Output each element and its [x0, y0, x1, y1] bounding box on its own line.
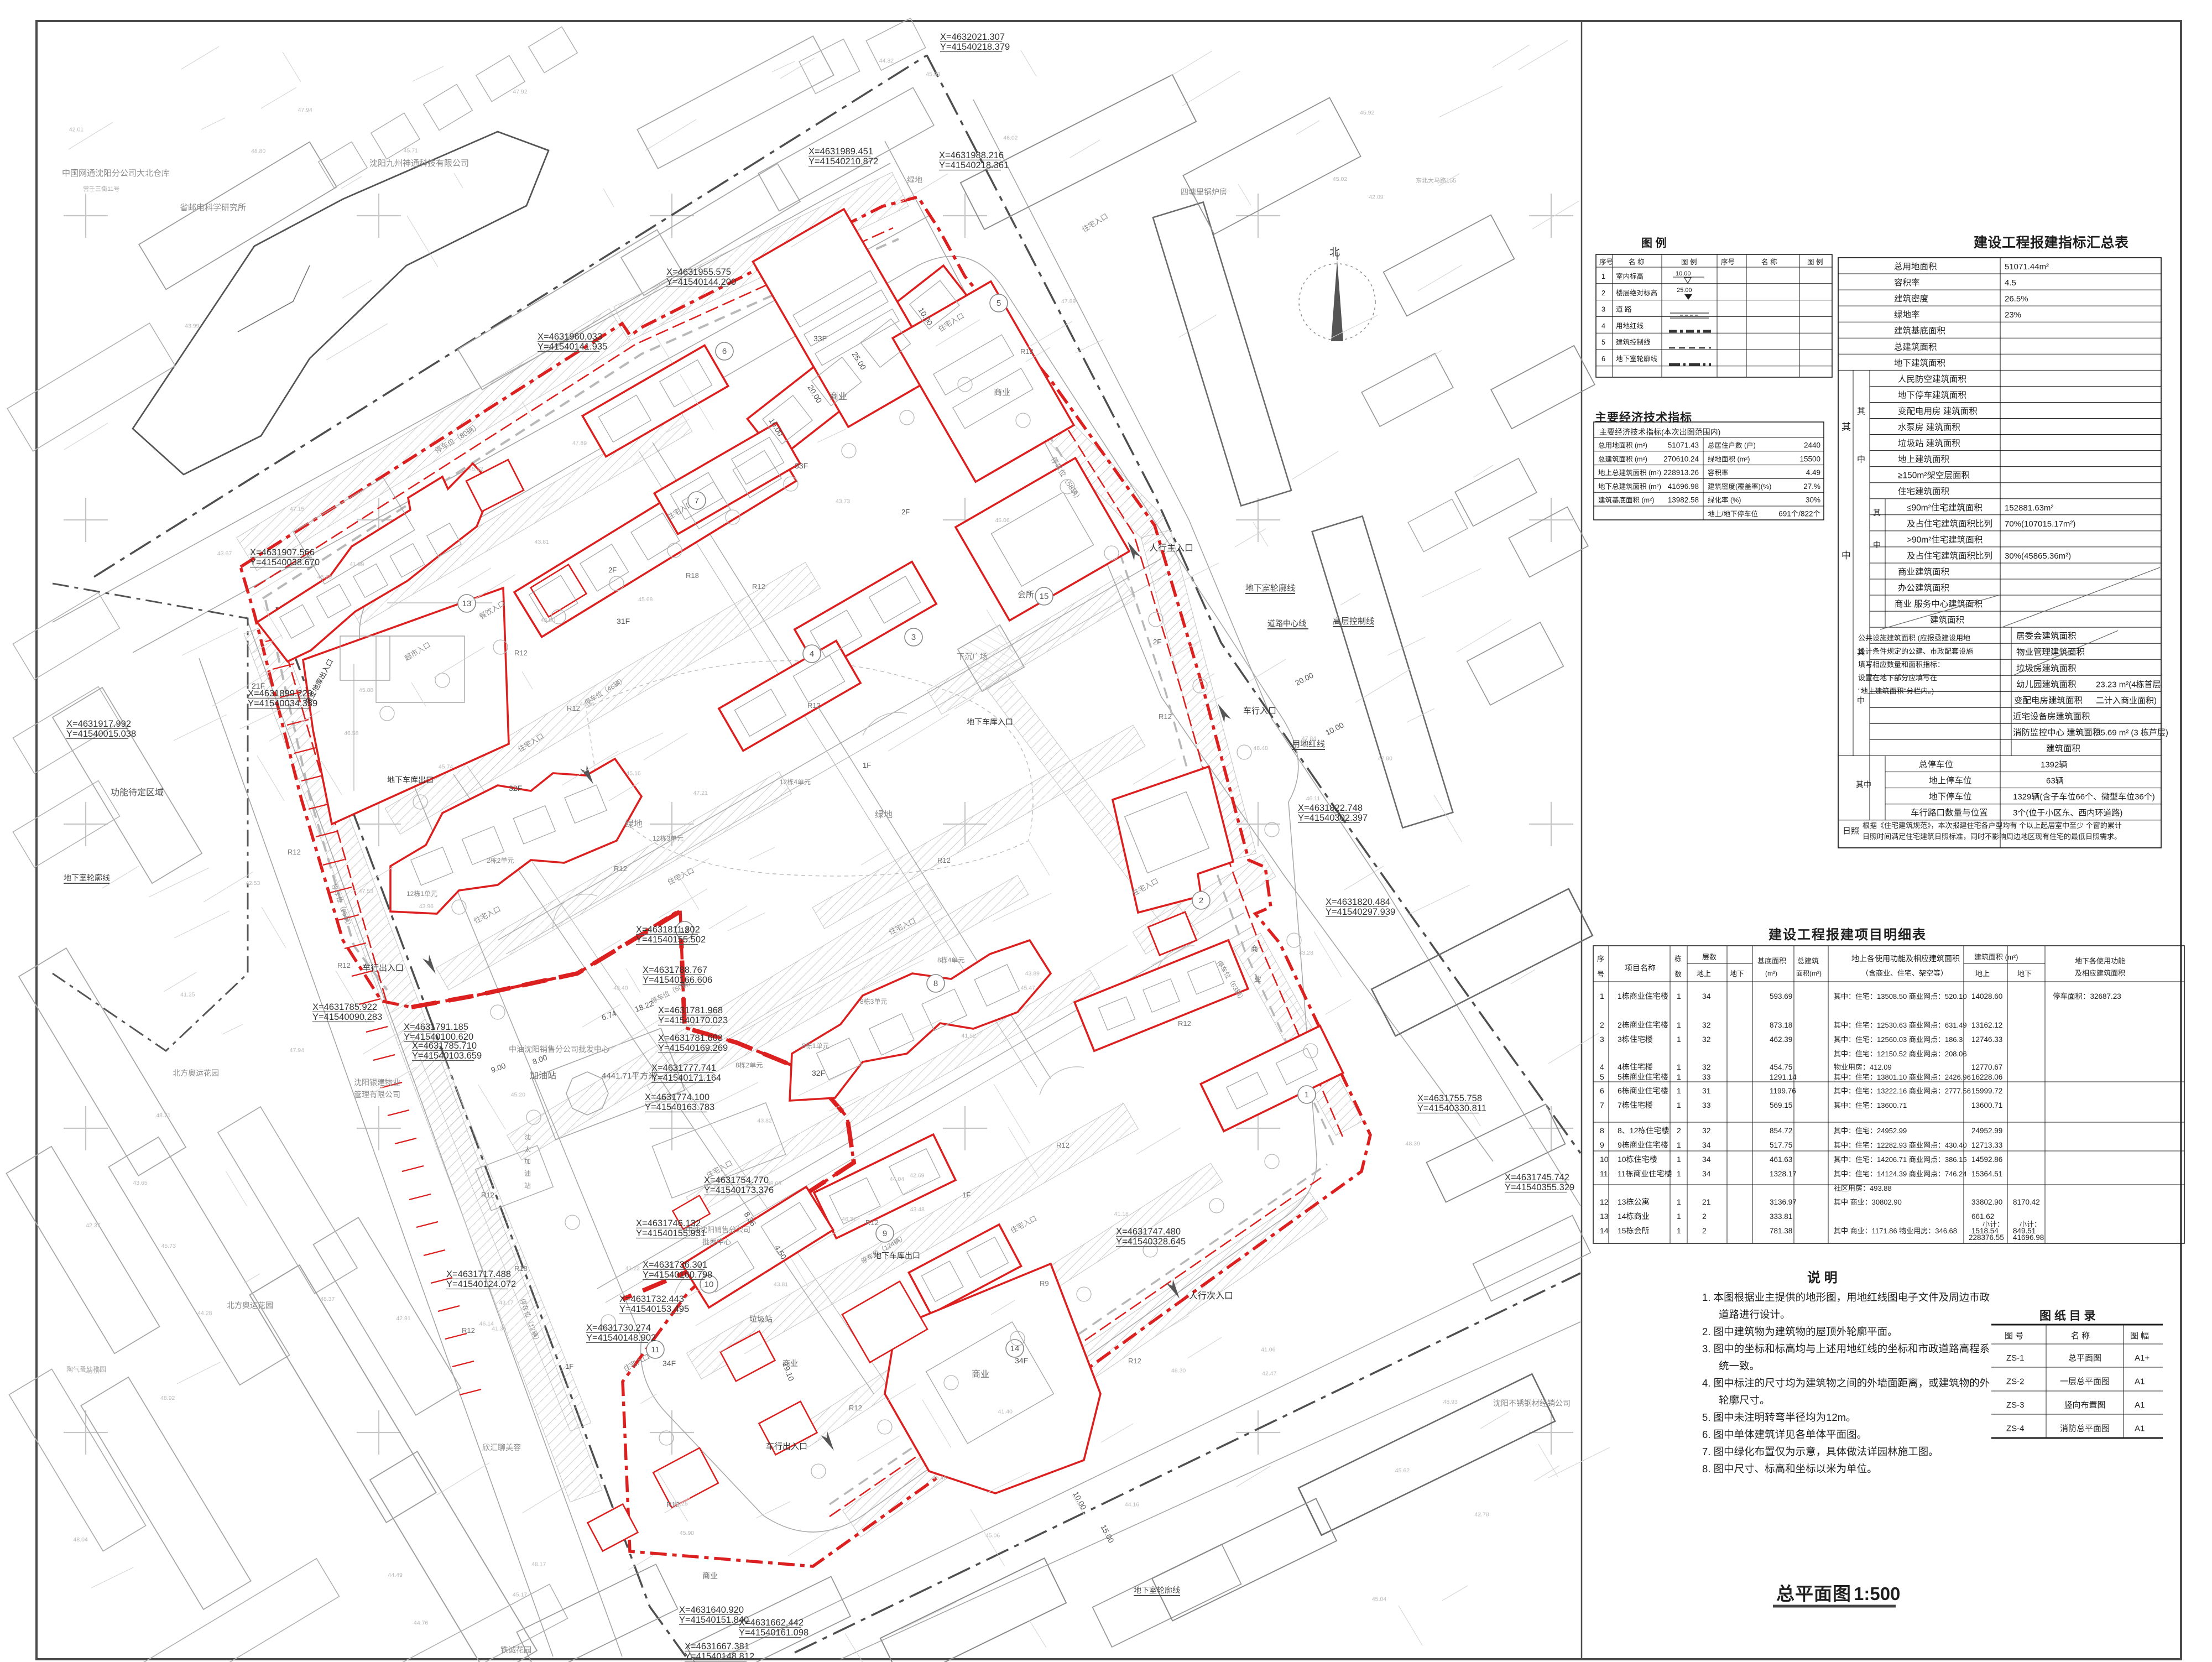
svg-text:48.17: 48.17 — [531, 1561, 546, 1567]
svg-text:14592.86: 14592.86 — [1971, 1155, 2002, 1164]
svg-text:70%(107015.17m²): 70%(107015.17m²) — [2005, 519, 2075, 529]
svg-text:Y=41540148.902: Y=41540148.902 — [586, 1333, 656, 1343]
svg-text:地下车库出口: 地下车库出口 — [387, 775, 434, 784]
svg-text:8栋2单元: 8栋2单元 — [735, 1061, 763, 1069]
svg-text:≤90m²住宅建筑面积: ≤90m²住宅建筑面积 — [1907, 503, 1983, 513]
svg-text:X=4631640.920: X=4631640.920 — [679, 1605, 744, 1615]
svg-text:总建筑: 总建筑 — [1797, 957, 1819, 965]
svg-text:总平面图: 总平面图 — [1776, 1583, 1851, 1604]
svg-text:Y=41540166.606: Y=41540166.606 — [643, 975, 712, 985]
svg-text:Y=41540302.397: Y=41540302.397 — [1298, 813, 1368, 823]
svg-text:商业建筑面积: 商业建筑面积 — [1898, 567, 1949, 577]
svg-text:X=4631747.480: X=4631747.480 — [1116, 1227, 1181, 1237]
svg-text:10栋住宅楼: 10栋住宅楼 — [1618, 1155, 1657, 1164]
svg-text:商业: 商业 — [702, 1571, 718, 1580]
svg-text:图 例: 图 例 — [1641, 236, 1667, 249]
svg-text:Y=41540210.872: Y=41540210.872 — [808, 157, 878, 166]
svg-text:项目名称: 项目名称 — [1625, 963, 1656, 972]
svg-text:X=4631745.742: X=4631745.742 — [1505, 1173, 1569, 1182]
svg-text:批发中心: 批发中心 — [702, 1238, 731, 1246]
svg-text:45.68: 45.68 — [638, 596, 653, 603]
svg-text:2F: 2F — [901, 508, 910, 516]
svg-text:Y=41540171.164: Y=41540171.164 — [651, 1073, 721, 1083]
svg-text:站: 站 — [524, 1182, 531, 1190]
svg-text:数: 数 — [1674, 970, 1682, 978]
svg-text:593.69: 593.69 — [1770, 992, 1792, 1001]
svg-text:1栋商业住宅楼: 1栋商业住宅楼 — [1618, 992, 1668, 1001]
svg-text:45.20: 45.20 — [511, 1092, 525, 1098]
svg-text:26.5%: 26.5% — [2005, 294, 2028, 304]
svg-text:23.23 m²(4栋首层: 23.23 m²(4栋首层 — [2096, 679, 2161, 689]
svg-text:33F: 33F — [813, 334, 827, 343]
svg-text:其中：住宅：13508.50 商业网点：520.10: 其中：住宅：13508.50 商业网点：520.10 — [1834, 992, 1967, 1001]
svg-text:地下室轮廓线: 地下室轮廓线 — [1134, 1586, 1180, 1595]
svg-text:图 纸 目 录: 图 纸 目 录 — [2039, 1309, 2096, 1322]
svg-text:41.36: 41.36 — [492, 1325, 506, 1332]
svg-text:21: 21 — [1702, 1197, 1711, 1206]
svg-text:X=4631781.603: X=4631781.603 — [658, 1033, 723, 1043]
svg-text:加: 加 — [524, 1158, 531, 1165]
svg-text:2. 图中建筑物为建筑物的屋顶外轮廓平面。: 2. 图中建筑物为建筑物的屋顶外轮廓平面。 — [1702, 1326, 1898, 1337]
svg-text:X=4631899.229: X=4631899.229 — [248, 689, 312, 699]
svg-text:41.52: 41.52 — [962, 1033, 976, 1039]
svg-text:3个(位于小区东、西内环道路): 3个(位于小区东、西内环道路) — [2013, 809, 2122, 818]
svg-text:其中：住宅：12282.93 商业网点：430.40: 其中：住宅：12282.93 商业网点：430.40 — [1834, 1141, 1967, 1149]
svg-text:4: 4 — [810, 649, 814, 659]
svg-text:根据《住宅建筑规范》，本次报建住宅各户型均有 个以上起居室中: 根据《住宅建筑规范》，本次报建住宅各户型均有 个以上起居室中至少 个窗的累计 — [1863, 821, 2122, 830]
svg-text:商: 商 — [1251, 945, 1258, 953]
svg-text:绿地: 绿地 — [875, 810, 893, 820]
svg-text:34F: 34F — [662, 1359, 676, 1368]
svg-text:1328.17: 1328.17 — [1770, 1170, 1797, 1178]
svg-text:45.93: 45.93 — [926, 71, 940, 78]
svg-text:41696.98: 41696.98 — [2013, 1233, 2044, 1242]
svg-text:铁诚花园: 铁诚花园 — [500, 1645, 531, 1654]
svg-text:Y=41540330.811: Y=41540330.811 — [1417, 1103, 1486, 1113]
svg-text:48.48: 48.48 — [1253, 745, 1267, 752]
svg-text:其中：住宅：14124.39 商业网点：746.24: 其中：住宅：14124.39 商业网点：746.24 — [1834, 1170, 1967, 1178]
svg-text:地下各使用功能: 地下各使用功能 — [2075, 957, 2125, 965]
svg-text:3栋住宅楼: 3栋住宅楼 — [1618, 1035, 1653, 1044]
svg-text:X=4631754.770: X=4631754.770 — [704, 1175, 769, 1185]
svg-text:Y=41540015.038: Y=41540015.038 — [66, 729, 136, 739]
svg-text:12713.33: 12713.33 — [1971, 1141, 2002, 1149]
svg-text:北方奥运花园: 北方奥运花园 — [227, 1301, 273, 1310]
svg-text:42.69: 42.69 — [910, 1173, 924, 1179]
svg-text:沈阳不锈钢材经销公司: 沈阳不锈钢材经销公司 — [1493, 1399, 1571, 1408]
svg-text:名 称: 名 称 — [2071, 1331, 2090, 1341]
svg-text:物业管理建筑面积: 物业管理建筑面积 — [2016, 647, 2085, 657]
svg-text:1F: 1F — [565, 1362, 573, 1371]
svg-text:其中: 其中 — [1856, 780, 1871, 789]
svg-text:13: 13 — [462, 599, 472, 608]
svg-text:45.02: 45.02 — [1333, 176, 1347, 183]
svg-text:41696.98: 41696.98 — [1668, 482, 1699, 491]
svg-text:42.01: 42.01 — [69, 126, 84, 133]
svg-text:1: 1 — [1677, 1072, 1681, 1081]
svg-text:道路中心线: 道路中心线 — [1267, 619, 1306, 628]
svg-text:R12: R12 — [1020, 347, 1034, 356]
svg-text:绿地: 绿地 — [907, 175, 922, 184]
svg-text:X=4632021.307: X=4632021.307 — [940, 32, 1005, 42]
svg-text:45.16: 45.16 — [626, 770, 640, 777]
svg-text:小计：: 小计： — [1983, 1220, 2004, 1228]
svg-text:北方奥运花园: 北方奥运花园 — [173, 1069, 219, 1077]
svg-text:34: 34 — [1702, 1169, 1711, 1178]
svg-text:地下车库入口: 地下车库入口 — [967, 717, 1013, 726]
svg-text:44.28: 44.28 — [197, 1310, 212, 1317]
svg-text:X=4631746.132: X=4631746.132 — [636, 1218, 701, 1228]
svg-text:48.80: 48.80 — [251, 148, 265, 154]
svg-text:30%(45865.36m²): 30%(45865.36m²) — [2005, 551, 2071, 561]
svg-text:其中：住宅：12560.03 商业网点：186.3: 其中：住宅：12560.03 商业网点：186.3 — [1834, 1035, 1963, 1044]
svg-text:873.18: 873.18 — [1770, 1021, 1792, 1029]
svg-text:其: 其 — [1873, 508, 1881, 517]
svg-text:地下建筑面积: 地下建筑面积 — [1894, 358, 1945, 368]
svg-text:地下停车建筑面积: 地下停车建筑面积 — [1898, 390, 1966, 400]
svg-text:建筑基底面积: 建筑基底面积 — [1894, 326, 1945, 336]
svg-text:7. 图中绿化布置仅为示意，具体做法详园林施工图。: 7. 图中绿化布置仅为示意，具体做法详园林施工图。 — [1702, 1446, 1939, 1457]
svg-text:1F: 1F — [863, 761, 871, 769]
svg-text:R18: R18 — [686, 571, 699, 580]
svg-text:33802.90: 33802.90 — [1971, 1198, 2002, 1206]
svg-text:35.69 m² (3 栋芦层): 35.69 m² (3 栋芦层) — [2096, 727, 2168, 737]
svg-text:517.75: 517.75 — [1770, 1141, 1792, 1149]
svg-text:1: 1 — [1677, 1101, 1681, 1109]
svg-text:地上: 地上 — [1697, 970, 1711, 978]
svg-text:12746.33: 12746.33 — [1971, 1035, 2002, 1044]
svg-text:总停车位: 总停车位 — [1919, 760, 1953, 770]
svg-text:45.74: 45.74 — [439, 764, 453, 770]
svg-text:总建筑面积 (m²): 总建筑面积 (m²) — [1598, 455, 1647, 463]
svg-text:44.32: 44.32 — [879, 58, 894, 64]
svg-text:车行出入口: 车行出入口 — [766, 1442, 807, 1451]
svg-text:Y=41540218.361: Y=41540218.361 — [939, 160, 1009, 170]
svg-text:10: 10 — [1600, 1155, 1609, 1164]
svg-text:454.75: 454.75 — [1770, 1063, 1792, 1071]
svg-text:地下总建筑面积 (m²): 地下总建筑面积 (m²) — [1598, 482, 1661, 491]
svg-text:1:500: 1:500 — [1854, 1583, 1900, 1604]
svg-text:Y=41540160.798: Y=41540160.798 — [643, 1270, 712, 1280]
svg-text:47.94: 47.94 — [290, 1047, 304, 1054]
svg-text:R12: R12 — [1056, 1141, 1070, 1149]
svg-text:30%: 30% — [1806, 496, 1820, 504]
svg-text:1: 1 — [1677, 1062, 1681, 1071]
svg-text:Y=41540103.659: Y=41540103.659 — [412, 1051, 482, 1061]
svg-text:公共设施建筑面积 (应报亟建设用地: 公共设施建筑面积 (应报亟建设用地 — [1858, 634, 1970, 642]
svg-text:其中：住宅：14206.71 商业网点：386.15: 其中：住宅：14206.71 商业网点：386.15 — [1834, 1155, 1967, 1164]
svg-text:(m²): (m²) — [1765, 970, 1777, 977]
svg-text:用地红线: 用地红线 — [1616, 321, 1644, 330]
svg-text:13600.71: 13600.71 — [1971, 1101, 2002, 1109]
svg-text:569.15: 569.15 — [1770, 1101, 1792, 1109]
svg-text:47.53: 47.53 — [359, 888, 373, 894]
svg-text:43.65: 43.65 — [133, 1180, 147, 1186]
svg-text:32: 32 — [1702, 1126, 1711, 1135]
svg-text:42.04: 42.04 — [1261, 587, 1276, 594]
svg-text:12: 12 — [1600, 1197, 1609, 1206]
svg-text:水泵房 建筑面积: 水泵房 建筑面积 — [1898, 423, 1960, 433]
svg-text:地上/地下停车位: 地上/地下停车位 — [1708, 510, 1758, 518]
svg-text:ZS-4: ZS-4 — [2006, 1424, 2025, 1434]
svg-text:43.40: 43.40 — [613, 984, 628, 991]
svg-text:270610.24: 270610.24 — [1663, 455, 1699, 463]
svg-text:46.46: 46.46 — [932, 1475, 947, 1481]
svg-text:14: 14 — [1600, 1226, 1609, 1235]
svg-text:15364.51: 15364.51 — [1971, 1170, 2002, 1178]
svg-text:661.62: 661.62 — [1971, 1212, 1994, 1221]
svg-text:6: 6 — [1600, 1086, 1604, 1095]
svg-text:41.22: 41.22 — [625, 1265, 640, 1272]
svg-text:R12: R12 — [288, 848, 301, 856]
svg-text:地下室轮廓线: 地下室轮廓线 — [1616, 355, 1658, 363]
svg-text:一层总平面图: 一层总平面图 — [2060, 1377, 2110, 1387]
svg-text:1F: 1F — [962, 1191, 971, 1199]
svg-text:及占住宅建筑面积比列: 及占住宅建筑面积比列 — [1907, 519, 1992, 529]
svg-text:Y=41540169.269: Y=41540169.269 — [658, 1043, 728, 1053]
svg-text:图 例: 图 例 — [1807, 258, 1823, 266]
svg-text:R12: R12 — [807, 701, 821, 710]
svg-text:建筑密度(覆盖率)(%): 建筑密度(覆盖率)(%) — [1708, 482, 1771, 491]
svg-text:人行主入口: 人行主入口 — [1149, 543, 1193, 553]
svg-text:X=4631730.274: X=4631730.274 — [586, 1323, 651, 1333]
svg-text:41.18: 41.18 — [1114, 1211, 1129, 1217]
svg-text:45.06: 45.06 — [995, 517, 1009, 524]
svg-text:X=4631907.566: X=4631907.566 — [250, 548, 315, 558]
svg-text:33: 33 — [1702, 1072, 1711, 1081]
svg-text:45.88: 45.88 — [359, 687, 373, 694]
svg-text:总建筑面积: 总建筑面积 — [1894, 342, 1937, 352]
svg-text:3. 图中的坐标和标高均与上述用地红线的坐标和市政道路高程: 3. 图中的坐标和标高均与上述用地红线的坐标和市政道路高程系 — [1702, 1343, 1990, 1354]
svg-text:14栋商业: 14栋商业 — [1618, 1212, 1650, 1221]
svg-text:日照时间满足住宅建筑日照标准，同时不影响周边地区现有住宅的最: 日照时间满足住宅建筑日照标准，同时不影响周边地区现有住宅的最低日照需求。 — [1863, 832, 2121, 841]
svg-text:东北大马路155: 东北大马路155 — [1416, 176, 1456, 184]
svg-text:13: 13 — [1600, 1212, 1609, 1221]
svg-text:Y=41540170.023: Y=41540170.023 — [658, 1015, 728, 1025]
svg-text:2440: 2440 — [1804, 441, 1820, 450]
svg-text:43.07: 43.07 — [86, 1369, 100, 1376]
svg-text:34: 34 — [1702, 1155, 1711, 1164]
svg-text:43.73: 43.73 — [836, 498, 850, 505]
svg-text:462.39: 462.39 — [1770, 1035, 1792, 1044]
svg-text:2: 2 — [1677, 1126, 1681, 1135]
svg-text:4栋住宅楼: 4栋住宅楼 — [1618, 1062, 1653, 1071]
svg-text:竖向布置图: 竖向布置图 — [2064, 1400, 2105, 1410]
svg-text:45.73: 45.73 — [161, 1243, 176, 1249]
svg-text:"地上建筑面积"分栏内。): "地上建筑面积"分栏内。) — [1858, 687, 1934, 695]
svg-text:A1: A1 — [2135, 1424, 2145, 1434]
svg-text:X=4631917.992: X=4631917.992 — [66, 719, 131, 729]
svg-text:12栋4单元: 12栋4单元 — [780, 778, 811, 786]
svg-text:42.91: 42.91 — [396, 1315, 410, 1322]
svg-text:容积率: 容积率 — [1894, 278, 1920, 288]
svg-text:栋: 栋 — [1674, 955, 1682, 963]
svg-text:2: 2 — [1600, 1020, 1604, 1029]
svg-text:6栋商业住宅楼: 6栋商业住宅楼 — [1618, 1086, 1668, 1095]
svg-text:统一致。: 统一致。 — [1719, 1360, 1760, 1372]
svg-text:15500: 15500 — [1799, 455, 1820, 463]
svg-text:2: 2 — [1199, 896, 1203, 905]
svg-text:63辆: 63辆 — [2046, 777, 2064, 786]
svg-text:691个/822个: 691个/822个 — [1778, 510, 1820, 518]
svg-text:车行入口: 车行入口 — [1243, 706, 1276, 716]
svg-text:X=4631736.301: X=4631736.301 — [643, 1260, 707, 1270]
svg-text:下沉广场: 下沉广场 — [957, 652, 988, 661]
svg-text:43.96: 43.96 — [419, 903, 434, 910]
svg-text:R12: R12 — [937, 856, 951, 864]
svg-text:33: 33 — [1702, 1101, 1711, 1109]
svg-text:9: 9 — [883, 1229, 887, 1238]
svg-text:垃圾站: 垃圾站 — [749, 1315, 773, 1324]
svg-text:6: 6 — [722, 347, 727, 356]
svg-text:道路进行设计。: 道路进行设计。 — [1719, 1309, 1791, 1320]
svg-text:43.81: 43.81 — [774, 1281, 788, 1288]
svg-text:8栋1单元: 8栋1单元 — [802, 1041, 829, 1050]
svg-text:物业用房：412.09: 物业用房：412.09 — [1834, 1063, 1892, 1071]
svg-text:R12: R12 — [514, 649, 528, 657]
svg-text:152881.63m²: 152881.63m² — [2005, 503, 2053, 513]
svg-text:R12: R12 — [614, 864, 627, 873]
svg-text:51071.44m²: 51071.44m² — [2005, 262, 2049, 272]
svg-text:1291.14: 1291.14 — [1770, 1073, 1797, 1081]
svg-text:四塘里锅炉房: 四塘里锅炉房 — [1181, 187, 1227, 196]
svg-text:面积(m²): 面积(m²) — [1796, 970, 1822, 977]
svg-text:43.82: 43.82 — [758, 1118, 772, 1124]
svg-text:781.38: 781.38 — [1770, 1227, 1792, 1235]
svg-text:2: 2 — [1702, 1212, 1707, 1221]
svg-text:X=4631774.100: X=4631774.100 — [645, 1092, 709, 1102]
svg-text:X=4631822.748: X=4631822.748 — [1298, 803, 1363, 813]
svg-text:R9: R9 — [1040, 1279, 1049, 1288]
svg-text:其中：住宅：12150.52 商业网点：208.06: 其中：住宅：12150.52 商业网点：208.06 — [1834, 1050, 1967, 1058]
svg-text:R12: R12 — [752, 582, 765, 591]
svg-text:25.00: 25.00 — [1677, 287, 1692, 294]
svg-text:47.89: 47.89 — [1061, 298, 1076, 305]
svg-text:近宅设备房建筑面积: 近宅设备房建筑面积 — [2013, 711, 2090, 721]
svg-text:名 称: 名 称 — [1629, 258, 1644, 266]
svg-text:45.62: 45.62 — [1395, 1467, 1410, 1474]
svg-text:10.00: 10.00 — [1676, 270, 1691, 277]
svg-text:居委会建筑面积: 居委会建筑面积 — [2016, 631, 2077, 641]
svg-text:地上停车位: 地上停车位 — [1929, 776, 1972, 786]
svg-text:42.78: 42.78 — [1474, 1512, 1489, 1518]
svg-text:44.16: 44.16 — [1125, 1502, 1139, 1508]
svg-text:15: 15 — [1040, 592, 1049, 601]
svg-text:建筑密度: 建筑密度 — [1894, 294, 1928, 304]
svg-text:2: 2 — [1702, 1226, 1707, 1235]
svg-text:X=4631989.451: X=4631989.451 — [808, 147, 873, 157]
svg-text:1: 1 — [1677, 1226, 1681, 1235]
svg-text:（含商业、住宅、架空等）: （含商业、住宅、架空等） — [1861, 969, 1948, 977]
svg-text:Y=41540124.072: Y=41540124.072 — [446, 1279, 516, 1289]
svg-text:32F: 32F — [509, 784, 522, 793]
svg-text:43.48: 43.48 — [910, 1206, 925, 1213]
svg-text:≥150m²架空层面积: ≥150m²架空层面积 — [1898, 471, 1970, 481]
svg-text:48.93: 48.93 — [1443, 1399, 1458, 1405]
svg-text:8: 8 — [1600, 1126, 1604, 1135]
svg-text:45.04: 45.04 — [1372, 1596, 1386, 1602]
svg-text:13162.12: 13162.12 — [1971, 1021, 2002, 1029]
svg-text:建筑面积: 建筑面积 — [2046, 744, 2080, 754]
svg-text:2: 2 — [1601, 289, 1605, 297]
svg-text:欣汇聊美容: 欣汇聊美容 — [482, 1443, 521, 1452]
svg-text:其中 商业：30802.90: 其中 商业：30802.90 — [1834, 1198, 1902, 1206]
svg-text:ZS-1: ZS-1 — [2006, 1353, 2025, 1363]
svg-text:42.53: 42.53 — [246, 880, 260, 887]
svg-text:图 例: 图 例 — [1681, 258, 1697, 266]
svg-text:号: 号 — [1597, 970, 1604, 978]
svg-text:32: 32 — [1702, 1035, 1711, 1044]
svg-text:X=4631791.185: X=4631791.185 — [404, 1022, 468, 1032]
svg-text:2F: 2F — [608, 566, 617, 574]
svg-text:8: 8 — [933, 979, 938, 988]
svg-text:4. 图中标注的尺寸均为建筑物之间的外墙面距离，或建筑物的: 4. 图中标注的尺寸均为建筑物之间的外墙面距离，或建筑物的外 — [1702, 1377, 1990, 1389]
svg-text:7: 7 — [695, 496, 699, 506]
svg-text:住宅建筑面积: 住宅建筑面积 — [1898, 487, 1949, 497]
svg-text:2栋商业住宅楼: 2栋商业住宅楼 — [1618, 1020, 1668, 1029]
svg-text:5. 图中未注明转弯半径均为12m。: 5. 图中未注明转弯半径均为12m。 — [1702, 1411, 1856, 1423]
svg-text:会所: 会所 — [1018, 590, 1034, 600]
svg-text:X=4631788.767: X=4631788.767 — [643, 965, 707, 975]
svg-text:变配电用房 建筑面积: 变配电用房 建筑面积 — [1898, 406, 1978, 416]
svg-text:16228.06: 16228.06 — [1971, 1073, 2002, 1081]
svg-text:X=4631785.710: X=4631785.710 — [412, 1041, 477, 1051]
svg-text:Y=41540218.379: Y=41540218.379 — [940, 42, 1010, 52]
svg-text:垃圾房建筑面积: 垃圾房建筑面积 — [2016, 663, 2077, 673]
svg-text:R18: R18 — [514, 1264, 528, 1273]
svg-text:45.90: 45.90 — [680, 1530, 694, 1536]
svg-text:13982.58: 13982.58 — [1668, 496, 1699, 504]
svg-text:Y=41540153.495: Y=41540153.495 — [619, 1304, 689, 1314]
svg-text:Y=41540141.935: Y=41540141.935 — [538, 342, 607, 352]
svg-text:日照: 日照 — [1843, 826, 1859, 836]
svg-text:沈: 沈 — [524, 1133, 531, 1141]
svg-text:地下室轮廓线: 地下室轮廓线 — [64, 873, 110, 882]
svg-text:及相应建筑面积: 及相应建筑面积 — [2075, 969, 2125, 977]
svg-text:人民防空建筑面积: 人民防空建筑面积 — [1898, 374, 1966, 384]
svg-text:3: 3 — [1601, 306, 1605, 314]
svg-text:46.02: 46.02 — [1003, 134, 1018, 141]
svg-text:45.47: 45.47 — [1021, 985, 1035, 992]
svg-text:24952.99: 24952.99 — [1971, 1127, 2002, 1135]
svg-text:图 号: 图 号 — [2005, 1331, 2023, 1341]
svg-text:51071.43: 51071.43 — [1668, 441, 1699, 450]
svg-text:ZS-2: ZS-2 — [2006, 1377, 2025, 1387]
svg-text:X=4631755.758: X=4631755.758 — [1417, 1093, 1482, 1103]
svg-text:中油沈阳销售分公司批发中心: 中油沈阳销售分公司批发中心 — [509, 1045, 609, 1054]
svg-text:44.04: 44.04 — [890, 1176, 904, 1182]
svg-text:46.58: 46.58 — [344, 730, 358, 737]
svg-text:6: 6 — [1601, 355, 1605, 363]
svg-text:3136.97: 3136.97 — [1770, 1198, 1797, 1206]
svg-text:R12: R12 — [481, 1191, 494, 1199]
svg-text:消防总平面图: 消防总平面图 — [2060, 1424, 2110, 1434]
svg-text:Y=41540151.840: Y=41540151.840 — [679, 1615, 749, 1625]
svg-text:47.15: 47.15 — [290, 506, 304, 512]
svg-text:43.17: 43.17 — [499, 1299, 513, 1306]
svg-text:地上建筑面积: 地上建筑面积 — [1898, 455, 1949, 465]
svg-text:228913.26: 228913.26 — [1663, 468, 1699, 477]
svg-text:道 路: 道 路 — [1616, 305, 1632, 314]
svg-text:地上各使用功能及相应建筑面积: 地上各使用功能及相应建筑面积 — [1851, 954, 1960, 963]
svg-text:绿地面积 (m²): 绿地面积 (m²) — [1708, 455, 1750, 463]
svg-text:加油站: 加油站 — [530, 1071, 556, 1081]
svg-text:油: 油 — [524, 1170, 531, 1178]
svg-text:建筑控制线: 建筑控制线 — [1616, 338, 1651, 346]
svg-text:31: 31 — [1702, 1086, 1711, 1095]
svg-text:车行路口数量与位置: 车行路口数量与位置 — [1911, 808, 1988, 818]
svg-text:42.47: 42.47 — [1262, 1370, 1276, 1377]
